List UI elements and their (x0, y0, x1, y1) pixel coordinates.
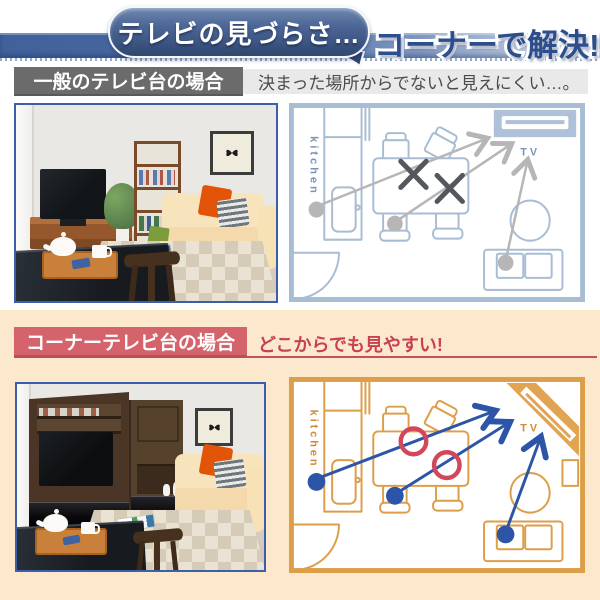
living-room-photo-corner (15, 382, 266, 572)
floorplan-general: kitchen (289, 103, 585, 302)
sofa (484, 250, 562, 290)
cup (92, 245, 107, 258)
dining-chair (131, 530, 187, 572)
butterfly-frame (195, 408, 233, 446)
kitchen-label: kitchen (308, 136, 320, 196)
vase (163, 484, 170, 496)
patterned-cushion (216, 197, 250, 229)
butterfly-icon (208, 422, 221, 433)
tv-unit (494, 110, 576, 137)
dining-chair (122, 253, 184, 303)
corner-section-caption: どこからでも見やすい! (258, 331, 443, 357)
butterfly-frame (210, 131, 254, 175)
patterned-cushion (213, 458, 247, 490)
speech-bubble: テレビの見づらさ… (108, 6, 370, 58)
general-section-caption: 決まった場所からでないと見えにくい…。 (243, 69, 588, 94)
tv (39, 432, 113, 486)
sofa (484, 522, 562, 562)
general-section-label: 一般のテレビ台の場合 (14, 67, 243, 96)
tv-label: TV (520, 422, 540, 434)
teapot (43, 514, 68, 532)
solution-text: コーナーで解決! (374, 20, 599, 65)
tv (40, 169, 106, 219)
cup (81, 522, 95, 534)
tv-label: TV (520, 146, 540, 158)
bubble-text: テレビの見づらさ… (117, 14, 360, 51)
promo-page: テレビの見づらさ… コーナーで解決! 一般のテレビ台の場合 決まった場所からでな… (0, 0, 600, 600)
teapot (50, 237, 76, 256)
corner-section-label: コーナーテレビ台の場合 (14, 327, 247, 358)
living-room-photo-general (14, 103, 278, 303)
butterfly-icon (225, 147, 239, 159)
red-underline (247, 356, 597, 358)
floorplan-corner: kitchen (289, 377, 585, 573)
kitchen-label: kitchen (308, 410, 320, 469)
